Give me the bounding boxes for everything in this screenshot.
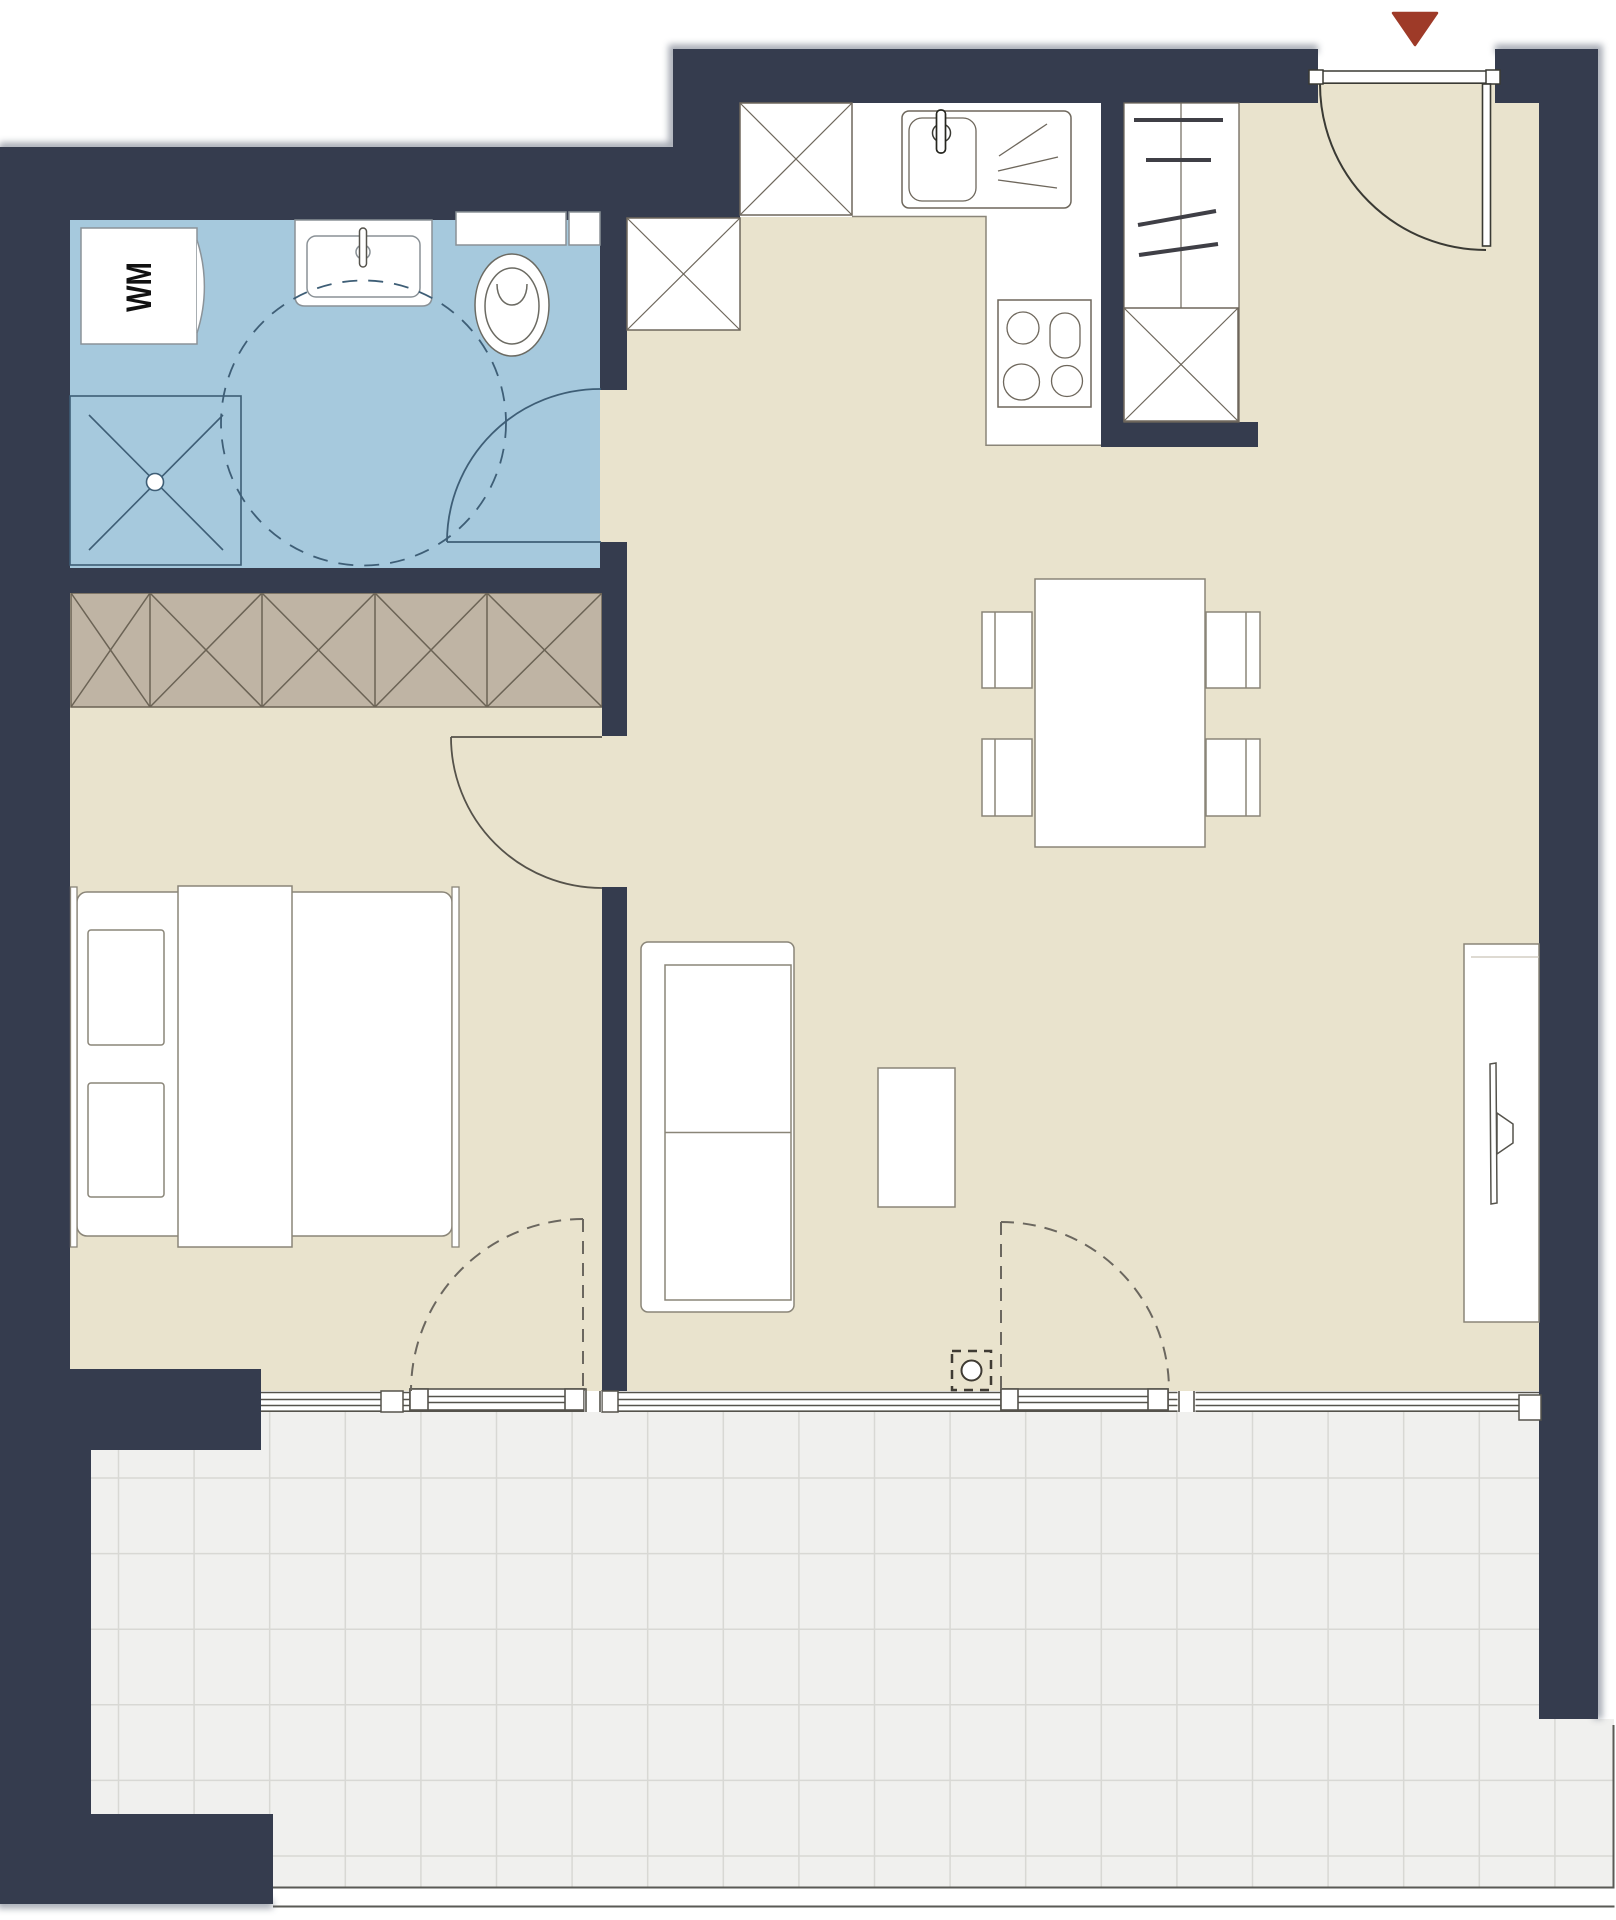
svg-text:WM: WM — [119, 262, 159, 312]
